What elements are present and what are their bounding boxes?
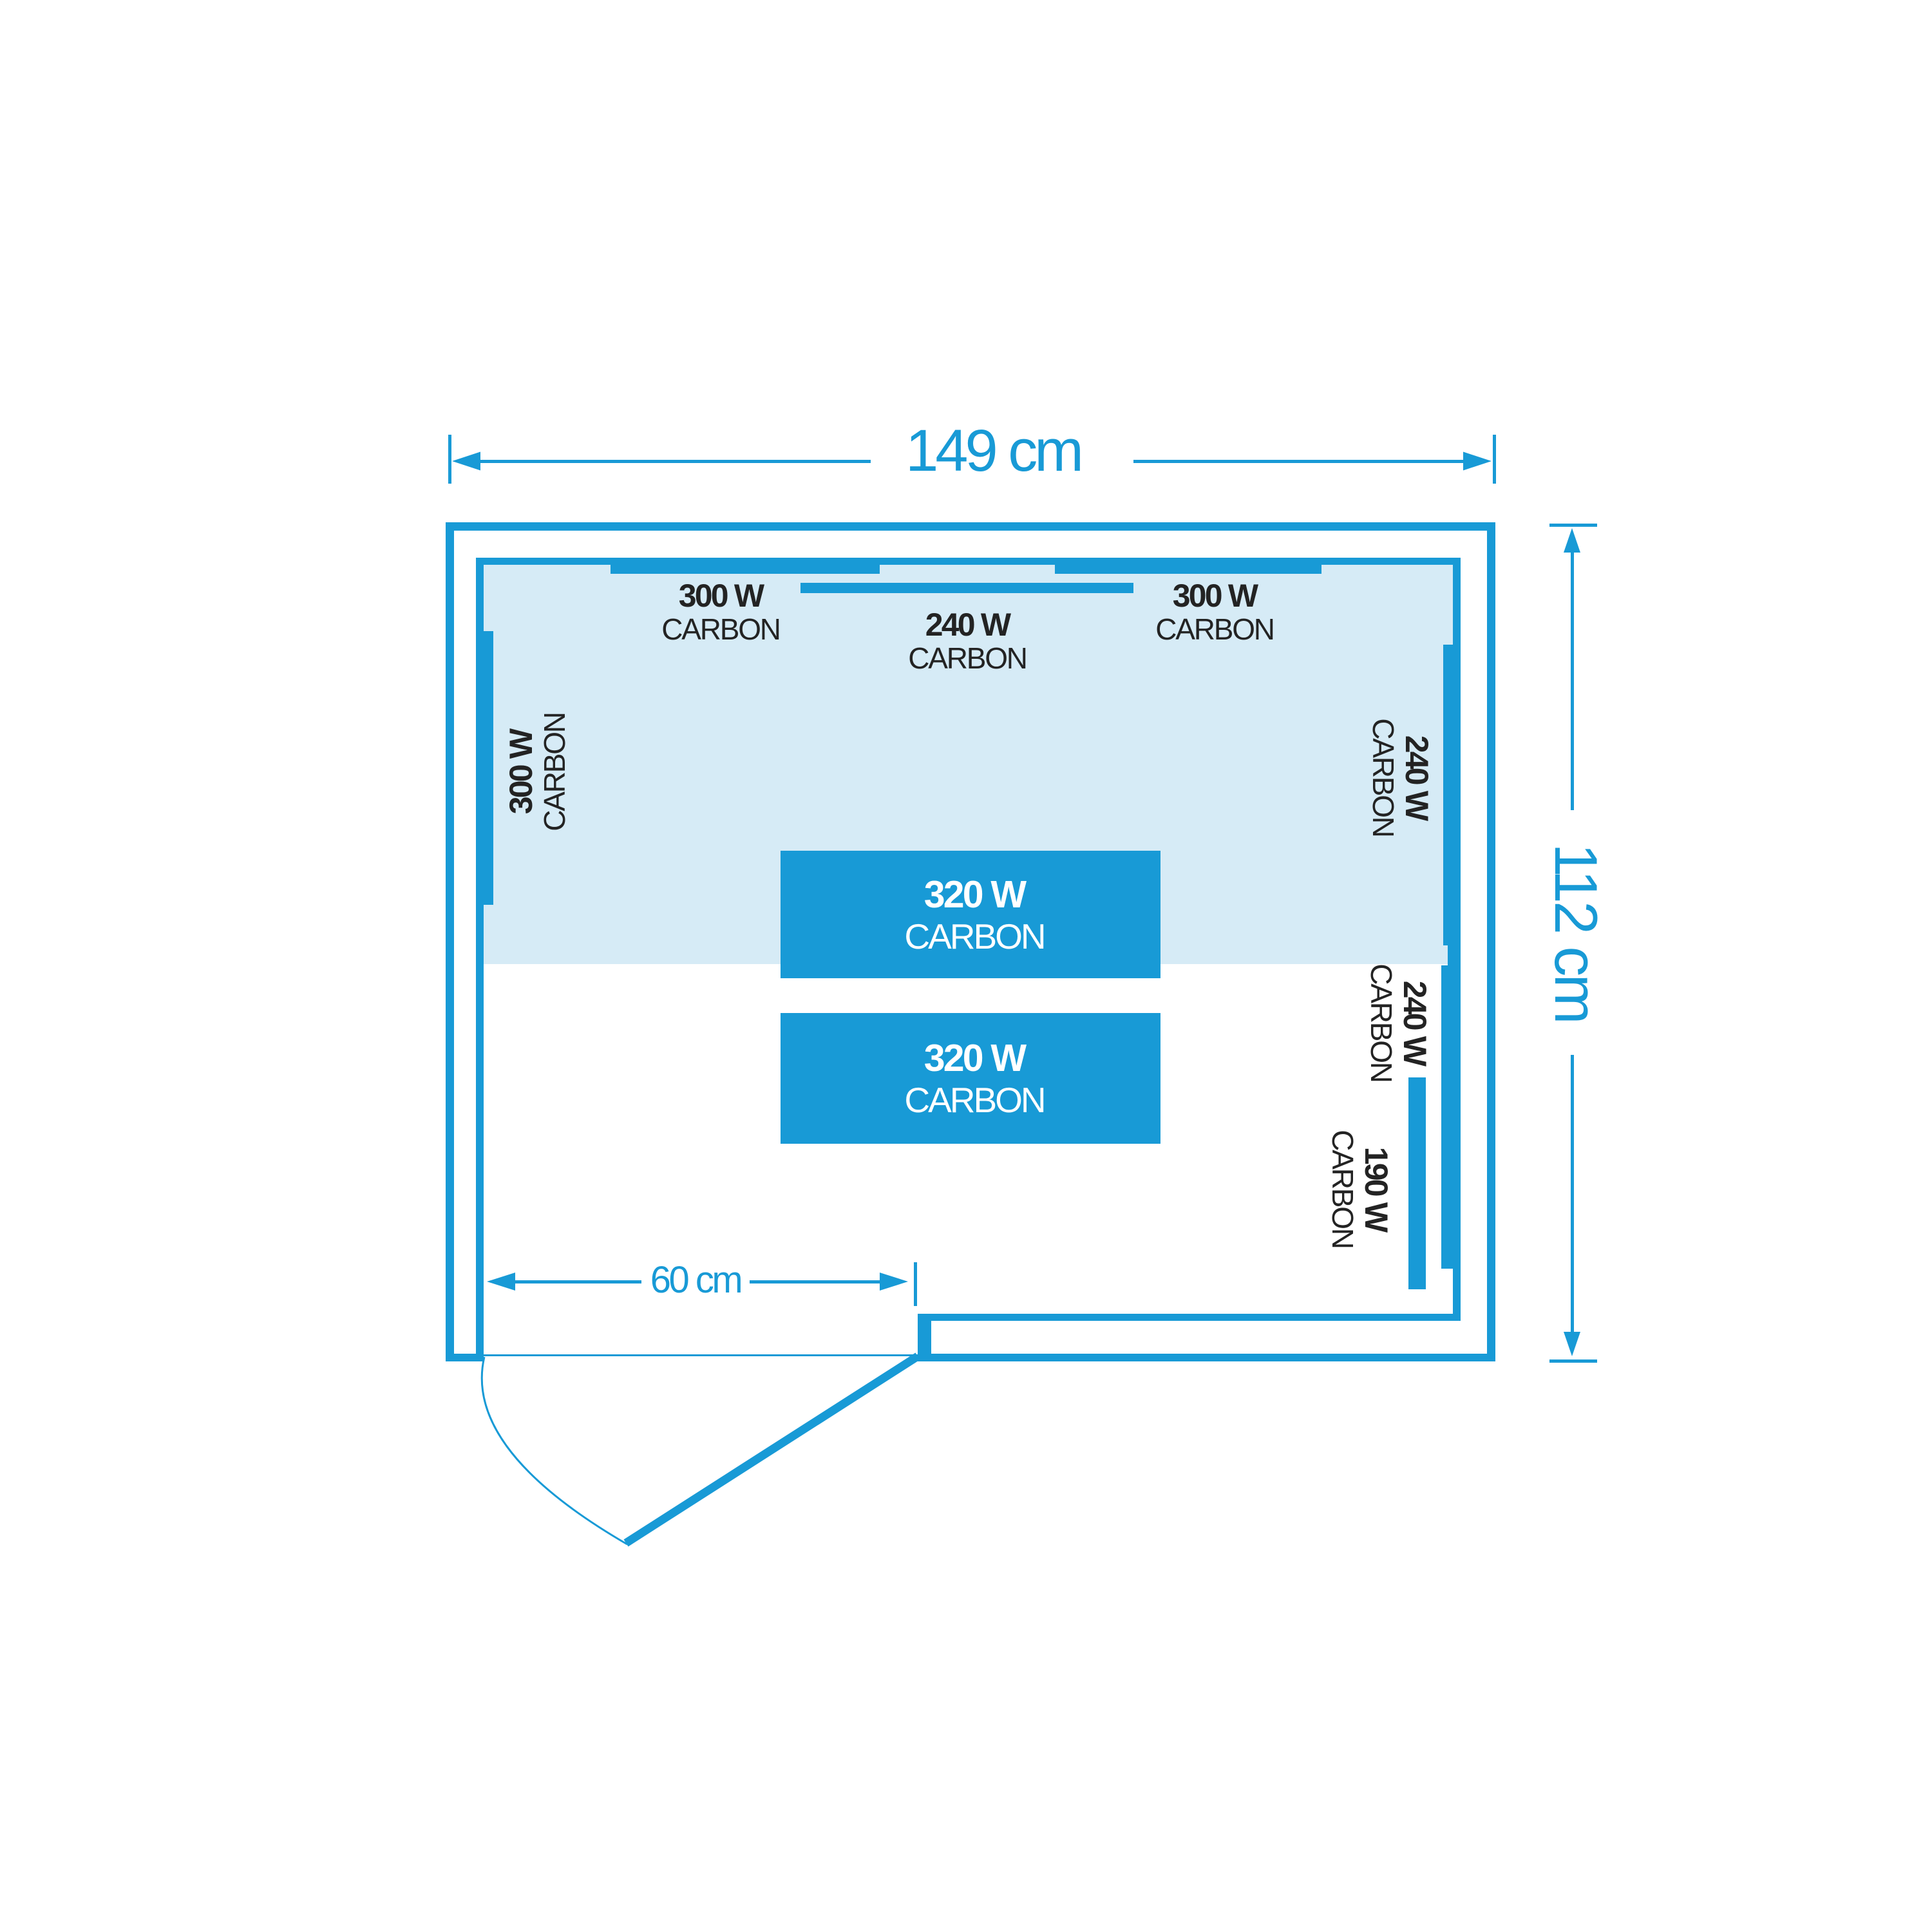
svg-text:CARBON: CARBON xyxy=(908,641,1027,675)
svg-text:CARBON: CARBON xyxy=(904,1080,1044,1120)
svg-text:320 W: 320 W xyxy=(924,873,1027,916)
svg-text:CARBON: CARBON xyxy=(1365,963,1398,1082)
svg-text:320 W: 320 W xyxy=(924,1037,1027,1079)
svg-text:CARBON: CARBON xyxy=(661,612,780,646)
svg-text:CARBON: CARBON xyxy=(1155,612,1274,646)
svg-text:240 W: 240 W xyxy=(1397,981,1433,1067)
svg-text:CARBON: CARBON xyxy=(538,713,571,831)
svg-text:190 W: 190 W xyxy=(1358,1147,1394,1233)
svg-text:CARBON: CARBON xyxy=(904,916,1044,956)
svg-text:60 cm: 60 cm xyxy=(650,1259,741,1301)
svg-text:CARBON: CARBON xyxy=(1367,718,1400,837)
svg-text:112 cm: 112 cm xyxy=(1542,843,1610,1021)
svg-text:300 W: 300 W xyxy=(679,578,765,614)
svg-text:240 W: 240 W xyxy=(1399,735,1435,822)
svg-text:300 W: 300 W xyxy=(1173,578,1259,614)
svg-text:300 W: 300 W xyxy=(503,728,539,814)
svg-text:240 W: 240 W xyxy=(925,607,1012,643)
svg-text:149 cm: 149 cm xyxy=(905,418,1081,484)
svg-text:CARBON: CARBON xyxy=(1326,1130,1359,1248)
